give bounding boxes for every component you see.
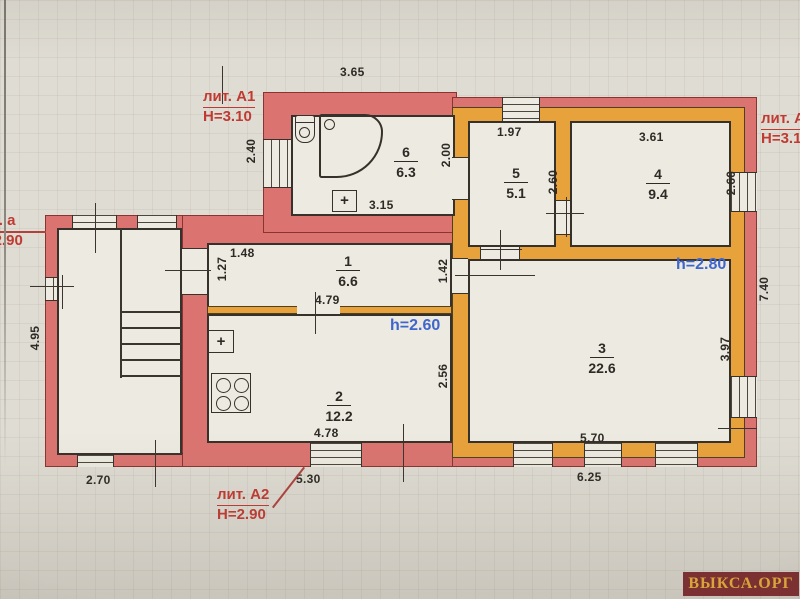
stove-symbol-room2: + [208, 330, 234, 353]
room-area: 12.2 [312, 406, 366, 424]
toilet-bowl [299, 127, 310, 138]
window-porch-bottom [77, 455, 114, 467]
window-room3-bottom-1 [513, 443, 553, 467]
room-2-label: 2 12.2 [312, 388, 366, 424]
room-number: 1 [336, 253, 360, 271]
window-porch-top-2 [137, 215, 177, 228]
room-area: 22.6 [575, 358, 629, 376]
dimension-label: 6.25 [577, 470, 602, 484]
litera-a2-leader-line [272, 467, 305, 508]
door-room5-room6 [452, 157, 468, 200]
dimension-label: 3.65 [340, 65, 365, 79]
dimension-label: 5.70 [580, 431, 605, 445]
litera-name: лит. А [761, 110, 800, 130]
litera-porch-leader-line [0, 231, 46, 233]
dimension-label: 4.78 [314, 426, 339, 440]
watermark-text: ВЫКСА.ОРГ [688, 575, 793, 593]
dimension-label: 5.30 [296, 472, 321, 486]
extension-line [718, 428, 757, 429]
dimension-label: 7.40 [757, 277, 771, 302]
burner-icon [234, 378, 249, 393]
entrance-door-room2 [310, 443, 362, 467]
door-porch-room1 [182, 248, 207, 295]
room-number: 6 [394, 144, 418, 162]
room-4-label: 4 9.4 [631, 166, 685, 202]
room-area: 9.4 [631, 184, 685, 202]
litera-a2-label: лит. А2 Н=2.90 [217, 486, 269, 524]
dimension-label: 1.97 [497, 125, 522, 139]
extension-line [480, 249, 522, 250]
litera-a1-label: лит. А1 Н=3.10 [203, 88, 255, 126]
dimension-label: 2.60 [546, 170, 560, 195]
stove-plus-glyph: + [217, 333, 226, 350]
burner-icon [216, 378, 231, 393]
burner-icon [234, 396, 249, 411]
extension-line [455, 275, 535, 276]
room-6-label: 6 6.3 [379, 144, 433, 180]
litera-height: Н=2.90 [217, 506, 266, 523]
window-room5-top [502, 97, 540, 121]
litera-height: Н=3.10 [203, 108, 252, 125]
ceiling-height-room2: h=2.60 [390, 317, 440, 335]
staircase [121, 311, 182, 379]
room-number: 4 [646, 166, 670, 184]
dimension-label: 4.95 [28, 326, 42, 351]
room-number: 2 [327, 388, 351, 406]
dimension-label: 4.79 [315, 293, 340, 307]
door-room1-room2 [297, 306, 340, 314]
dimension-label: 1.27 [215, 257, 229, 282]
dimension-label: 2.70 [86, 473, 111, 487]
extension-line [138, 453, 183, 454]
litera-height: Н=3.10 [761, 130, 800, 147]
watermark-badge: ВЫКСА.ОРГ [683, 572, 799, 596]
door-room1-room3 [452, 258, 468, 294]
dimension-label: 2.60 [724, 171, 738, 196]
room-area: 5.1 [489, 183, 543, 201]
room-number: 5 [504, 165, 528, 183]
extension-line [155, 440, 156, 487]
dimension-label: 2.00 [439, 143, 453, 168]
dimension-label: 2.40 [244, 139, 258, 164]
toilet-symbol [295, 115, 315, 143]
window-room3-bottom-2 [584, 443, 622, 467]
window-room3-right [731, 376, 757, 418]
dimension-label: 3.61 [639, 130, 664, 144]
window-porch-left [45, 277, 57, 301]
room-area: 6.6 [321, 271, 375, 289]
dimension-label: 1.48 [230, 246, 255, 260]
window-room3-bottom-3 [655, 443, 698, 467]
dimension-label: 3.97 [718, 337, 732, 362]
room-5-label: 5 5.1 [489, 165, 543, 201]
extension-line [500, 230, 501, 270]
litera-name: лит. а [0, 212, 15, 232]
burner-icon [216, 396, 231, 411]
stove-symbol-room6: + [332, 190, 357, 212]
room-number: 3 [590, 340, 614, 358]
extension-line [62, 275, 63, 309]
gas-stove-symbol [211, 373, 251, 413]
door-room5-room4 [556, 200, 570, 235]
room-area: 6.3 [379, 162, 433, 180]
litera-name: лит. А1 [203, 88, 255, 108]
extension-line [165, 270, 211, 271]
toilet-tank-line [296, 122, 314, 123]
dimension-label: 1.42 [436, 259, 450, 284]
floor-plan-photo: + + 6 6.3 5 5.1 4 9.4 1 6.6 2 12.2 3 2 [0, 0, 800, 599]
room-3-label: 3 22.6 [575, 340, 629, 376]
extension-line [546, 213, 584, 214]
stove-plus-glyph: + [340, 192, 349, 209]
page-edge-line [4, 0, 6, 599]
dimension-label: 2.56 [436, 364, 450, 389]
extension-line [403, 424, 404, 482]
dimension-label: 3.15 [369, 198, 394, 212]
bathtub-drain [324, 119, 335, 130]
room-1-label: 1 6.6 [321, 253, 375, 289]
extension-line [95, 203, 96, 253]
extension-line [30, 286, 74, 287]
window-room6-left [263, 139, 291, 188]
litera-main-label: лит. А Н=3.10 [761, 110, 800, 148]
litera-name: лит. А2 [217, 486, 269, 506]
ceiling-height-room3: h=2.80 [676, 256, 726, 274]
extension-line [566, 197, 567, 237]
